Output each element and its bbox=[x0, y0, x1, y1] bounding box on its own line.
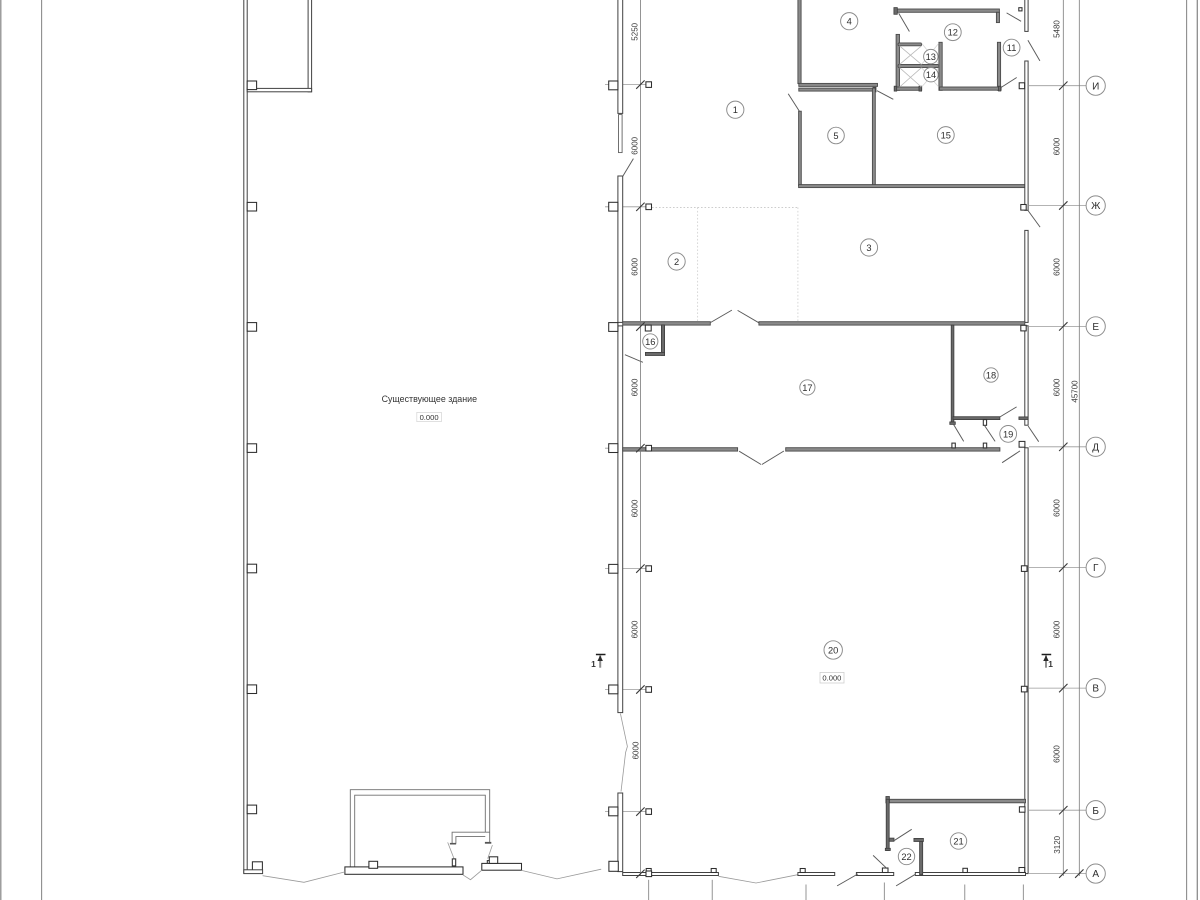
svg-text:Б: Б bbox=[1092, 806, 1099, 817]
svg-text:19: 19 bbox=[1003, 429, 1013, 439]
svg-text:4: 4 bbox=[847, 17, 852, 27]
svg-text:0.000: 0.000 bbox=[822, 674, 841, 683]
svg-text:14: 14 bbox=[926, 70, 936, 80]
svg-text:Е: Е bbox=[1092, 322, 1099, 333]
svg-text:5480: 5480 bbox=[1052, 20, 1061, 38]
svg-text:6000: 6000 bbox=[1052, 620, 1061, 638]
svg-text:5250: 5250 bbox=[631, 22, 640, 40]
svg-text:6000: 6000 bbox=[1052, 745, 1061, 763]
svg-text:20: 20 bbox=[828, 646, 838, 656]
svg-text:13: 13 bbox=[926, 52, 936, 62]
svg-text:3120: 3120 bbox=[1053, 835, 1062, 853]
svg-text:6000: 6000 bbox=[1052, 258, 1061, 276]
svg-text:45700: 45700 bbox=[1071, 380, 1080, 403]
svg-text:15: 15 bbox=[941, 131, 951, 141]
svg-text:А: А bbox=[1092, 869, 1099, 880]
svg-text:Г: Г bbox=[1093, 563, 1099, 574]
svg-text:1: 1 bbox=[733, 105, 738, 115]
svg-text:Д: Д bbox=[1092, 442, 1099, 453]
svg-text:22: 22 bbox=[901, 852, 911, 862]
svg-text:Существующее здание: Существующее здание bbox=[382, 394, 477, 404]
svg-text:6000: 6000 bbox=[1052, 137, 1061, 155]
svg-text:6000: 6000 bbox=[631, 620, 640, 638]
svg-text:18: 18 bbox=[986, 371, 996, 381]
svg-text:2: 2 bbox=[674, 257, 679, 267]
svg-text:6000: 6000 bbox=[631, 257, 640, 275]
svg-text:21: 21 bbox=[953, 837, 963, 847]
svg-text:В: В bbox=[1092, 684, 1099, 695]
svg-text:16: 16 bbox=[645, 337, 655, 347]
svg-text:6000: 6000 bbox=[632, 741, 641, 759]
svg-text:6000: 6000 bbox=[631, 136, 640, 154]
svg-text:11: 11 bbox=[1007, 43, 1017, 53]
svg-text:6000: 6000 bbox=[1052, 499, 1061, 517]
svg-text:И: И bbox=[1092, 81, 1099, 92]
svg-text:0.000: 0.000 bbox=[420, 413, 439, 422]
svg-text:3: 3 bbox=[866, 243, 871, 253]
svg-text:6000: 6000 bbox=[631, 499, 640, 517]
svg-text:17: 17 bbox=[802, 383, 812, 393]
svg-text:5: 5 bbox=[833, 131, 838, 141]
svg-text:6000: 6000 bbox=[1052, 378, 1061, 396]
svg-text:1: 1 bbox=[591, 659, 596, 669]
svg-text:6000: 6000 bbox=[631, 378, 640, 396]
svg-text:1: 1 bbox=[1048, 659, 1053, 669]
svg-text:12: 12 bbox=[948, 28, 958, 38]
svg-text:Ж: Ж bbox=[1091, 201, 1101, 212]
